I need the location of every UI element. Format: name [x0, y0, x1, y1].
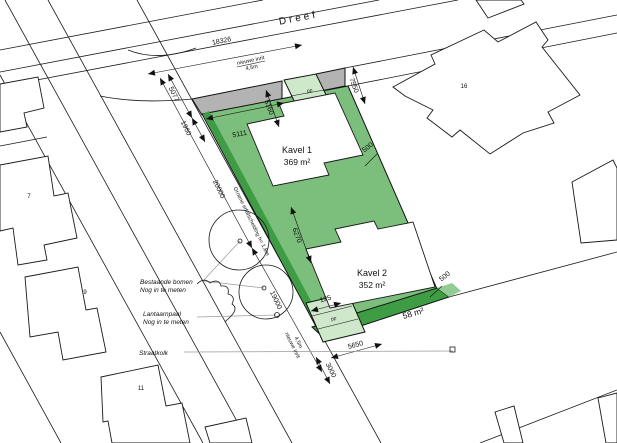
house-number-11: 11 [138, 386, 145, 392]
lamppost-note-line2: Nog in te meten [143, 319, 189, 326]
trees-note-line2: Nog in te meten [140, 287, 186, 294]
kavel1-label: Kavel 1 [282, 145, 312, 155]
house-number-16: 16 [461, 84, 468, 90]
trees-note-line1: Bestaande bomen [140, 279, 193, 286]
kavel2-label: Kavel 2 [357, 268, 387, 278]
gully-note: Straatkolk [139, 350, 169, 357]
kavel1-area: 369 m² [284, 157, 311, 167]
site-plan: Dreef 18326 5077 1960 5111 5160 7550 500… [0, 0, 617, 443]
kavel2-area: 352 m² [359, 280, 386, 290]
site-plan-drawing: Dreef 18326 5077 1960 5111 5160 7550 500… [0, 0, 617, 443]
lamppost-note-line1: Lantaarnpaal [143, 311, 182, 318]
